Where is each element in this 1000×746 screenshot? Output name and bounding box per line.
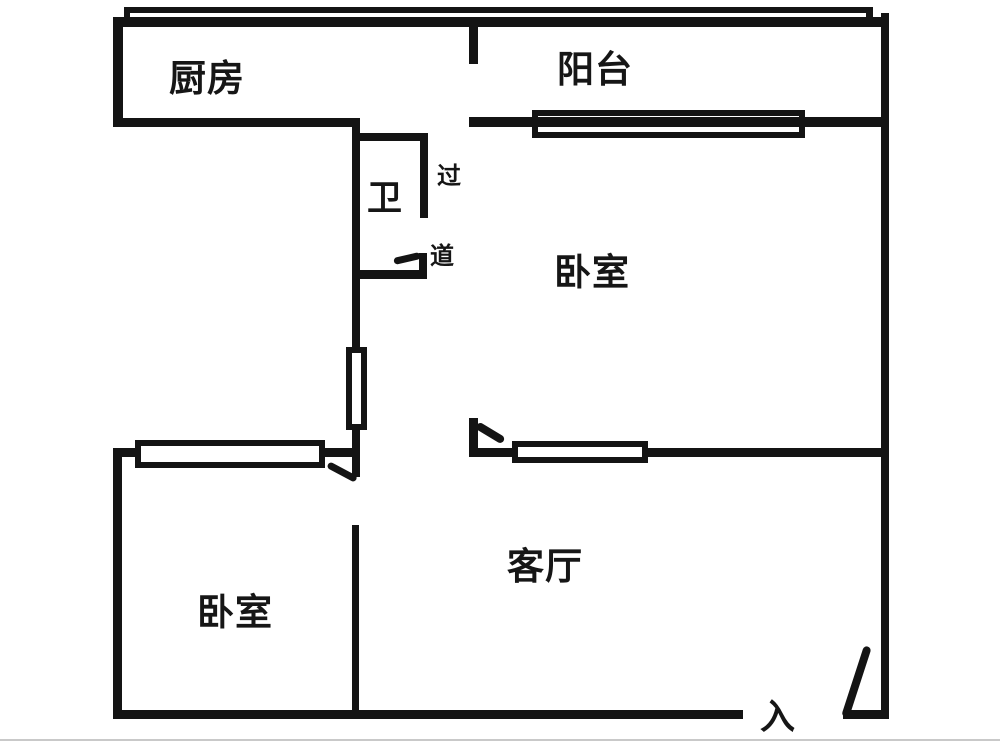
living-room-label: 客厅 <box>507 548 583 585</box>
bedroom-bottom-left-label: 卧室 <box>197 594 273 631</box>
entrance-label: 入 <box>760 700 796 735</box>
top-exterior-wall <box>113 17 883 27</box>
kitchen-label: 厨房 <box>169 60 245 97</box>
kitchen-balcony-partition-wall <box>469 27 478 64</box>
bedroom-top-right-label: 卧室 <box>554 254 630 291</box>
bedroom-left-right-wall <box>352 525 359 711</box>
entrance-door-leaf <box>841 645 871 718</box>
bathroom-right-wall <box>420 133 428 218</box>
balcony-label: 阳台 <box>557 51 633 88</box>
floorplan: 厨房 阳台 卫 过 道 卧室 卧室 客厅 入 <box>0 0 1000 746</box>
bathroom-top-wall <box>358 133 428 141</box>
left-exterior-wall-lower <box>113 448 122 719</box>
bathroom-bottom-wall <box>352 270 427 279</box>
hall-vertical-window <box>346 347 367 430</box>
kitchen-bottom-wall <box>113 118 359 127</box>
kitchen-left-wall <box>113 17 123 127</box>
bathroom-door-leaf <box>393 252 421 265</box>
living-room-window <box>512 441 648 463</box>
corridor-label-top: 过 <box>437 165 461 189</box>
top-window-outer-line <box>124 7 873 13</box>
corridor-label-bottom: 道 <box>430 245 454 269</box>
living-room-door-leaf <box>475 422 506 445</box>
page-bottom-divider <box>0 739 1000 741</box>
bathroom-label: 卫 <box>367 181 403 216</box>
balcony-window <box>532 110 805 138</box>
left-interior-wall-upper <box>352 118 360 347</box>
bottom-exterior-wall <box>113 710 743 719</box>
bedroom-left-window <box>135 440 325 468</box>
